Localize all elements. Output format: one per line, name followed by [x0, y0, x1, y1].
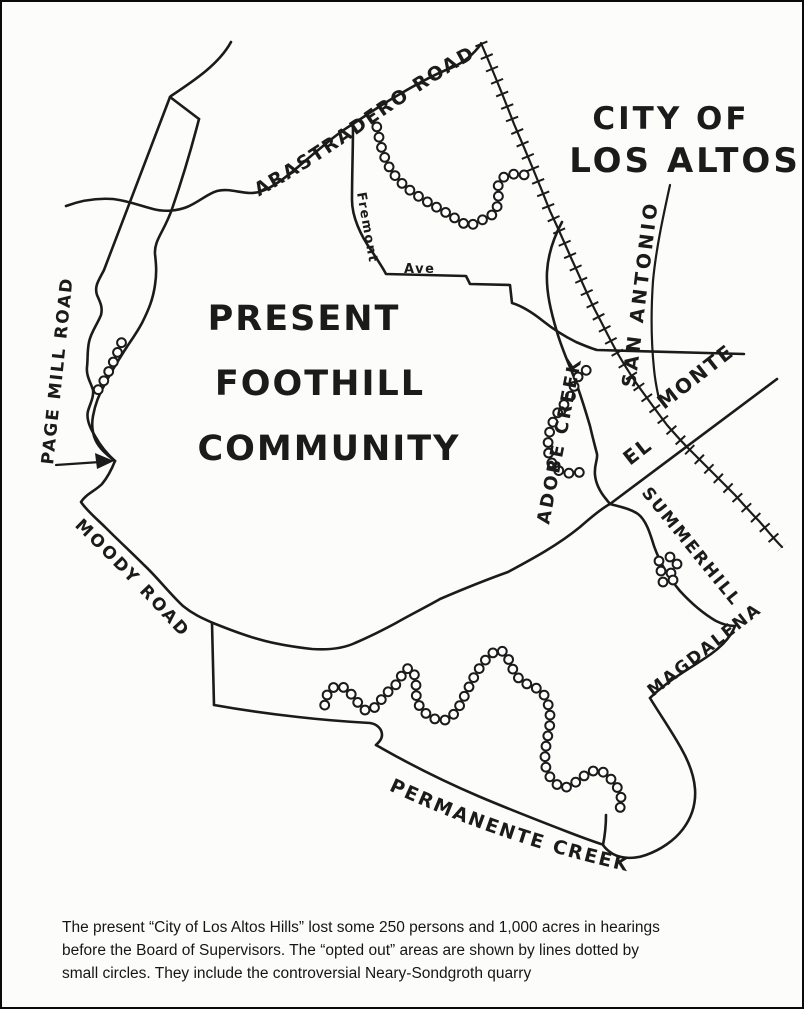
opted-out-bead	[504, 655, 513, 664]
opted-out-bead	[323, 691, 332, 700]
map-canvas: ARASTRADERO ROAD CITY OF LOS ALTOS PRESE…	[2, 2, 804, 1009]
southwest-drop-line	[212, 623, 214, 705]
page-mill-road-label: PAGE MILL ROAD	[38, 276, 78, 466]
opted-out-bead	[406, 186, 415, 195]
opted-out-bead	[493, 202, 502, 211]
opted-out-bead	[580, 772, 589, 781]
creek-connector-line	[603, 815, 606, 845]
opted-out-bead	[542, 763, 551, 772]
opted-out-bead	[542, 742, 551, 751]
opted-out-bead	[565, 469, 574, 478]
moody-road-label-text: MOODY ROAD	[71, 515, 194, 642]
southeast-boundary-line	[603, 698, 695, 858]
fremont-ave-label-suffix: Ave	[404, 262, 435, 277]
south-boundary-line	[214, 705, 382, 745]
arastradero-road-label: ARASTRADERO ROAD	[250, 42, 479, 201]
opted-out-bead	[391, 680, 400, 689]
el-monte-label-el: EL	[618, 432, 657, 470]
opted-out-bead	[540, 691, 549, 700]
el-monte-label-monte: MONTE	[652, 339, 738, 414]
opted-out-bead	[508, 665, 517, 674]
caption-line-3: small circles. They include the controve…	[62, 962, 762, 985]
opted-out-bead	[380, 153, 389, 162]
opted-out-bead	[370, 703, 379, 712]
opted-out-bead	[432, 203, 441, 212]
opted-out-bead	[575, 468, 584, 477]
opted-out-bead	[522, 680, 531, 689]
opted-out-bead	[494, 192, 503, 201]
opted-out-bead	[410, 670, 419, 679]
opted-out-bead	[543, 732, 552, 741]
caption-line-2: before the Board of Supervisors. The “op…	[62, 939, 762, 962]
moody-road-label: MOODY ROAD	[71, 515, 194, 642]
opted-out-bead	[422, 709, 431, 718]
map-labels: ARASTRADERO ROAD CITY OF LOS ALTOS PRESE…	[38, 42, 801, 877]
opted-out-bead	[398, 179, 407, 188]
opted-out-bead	[469, 673, 478, 682]
opted-out-bead	[478, 215, 487, 224]
opted-out-bead	[469, 220, 478, 229]
opted-out-bead	[353, 698, 362, 707]
opted-out-bead	[415, 701, 424, 710]
opted-out-bead	[441, 716, 450, 725]
opted-out-bead	[320, 701, 329, 710]
opted-out-bead	[487, 211, 496, 220]
opted-out-bead	[430, 715, 439, 724]
opted-out-bead	[459, 219, 468, 228]
city-of-los-altos-label-line2: LOS ALTOS	[569, 141, 801, 181]
opted-out-bead	[589, 767, 598, 776]
opted-out-bead	[104, 367, 113, 376]
opted-out-bead	[616, 803, 625, 812]
opted-out-bead	[599, 768, 608, 777]
opted-out-bead	[498, 647, 507, 656]
opted-out-bead	[509, 170, 518, 179]
opted-out-bead	[339, 683, 348, 692]
opted-out-bead	[117, 338, 126, 347]
opted-out-bead	[465, 683, 474, 692]
opted-out-bead	[347, 690, 356, 699]
opted-out-bead	[441, 208, 450, 217]
opted-out-bead	[391, 171, 400, 180]
opted-out-bead	[553, 780, 562, 789]
west-boundary-inner-line	[92, 119, 199, 461]
opted-out-bead	[423, 198, 432, 207]
opted-out-bead	[481, 656, 490, 665]
opted-out-bead	[460, 692, 469, 701]
opted-out-bead	[520, 171, 529, 180]
opted-out-bead	[475, 664, 484, 673]
opted-out-bead	[377, 695, 386, 704]
community-title-line3: COMMUNITY	[197, 429, 460, 469]
opted-out-bead	[499, 173, 508, 182]
adobe-creek-label: ADOBE CREEK	[533, 355, 586, 525]
map-caption: The present “City of Los Altos Hills” lo…	[62, 916, 762, 985]
opted-out-bead	[384, 687, 393, 696]
opted-out-bead	[546, 772, 555, 781]
opted-out-bead	[541, 752, 550, 761]
opted-out-bead	[607, 775, 616, 784]
opted-out-bead	[617, 793, 626, 802]
opted-out-bead	[412, 681, 421, 690]
opted-out-bead	[375, 133, 384, 142]
opted-out-bead	[571, 778, 580, 787]
opted-out-bead	[361, 706, 370, 715]
opted-out-bead	[109, 358, 118, 367]
opted-out-bead	[414, 192, 423, 201]
opted-out-bead	[329, 683, 338, 692]
permanente-creek-label-text: PERMANENTE CREEK	[386, 775, 632, 877]
opted-out-bead	[412, 691, 421, 700]
opted-out-bead	[450, 214, 459, 223]
opted-out-bead	[377, 143, 386, 152]
opted-out-bead	[455, 701, 464, 710]
san-antonio-label: SAN ANTONIO	[618, 199, 663, 389]
scanned-map-page: ARASTRADERO ROAD CITY OF LOS ALTOS PRESE…	[0, 0, 804, 1009]
page-mill-arrow-line	[56, 462, 100, 465]
community-title-line1: PRESENT	[208, 299, 401, 339]
west-boundary-outer-line	[87, 97, 170, 461]
strip-cap-line	[170, 97, 199, 119]
opted-out-bead	[99, 376, 108, 385]
opted-out-bead	[385, 163, 394, 172]
northwest-spur-line	[171, 42, 231, 96]
opted-out-bead	[113, 348, 122, 357]
opted-out-bead	[94, 385, 103, 394]
arastradero-road-label-text: ARASTRADERO ROAD	[250, 42, 479, 201]
opted-out-bead	[562, 783, 571, 792]
opted-out-bead	[449, 710, 458, 719]
opted-out-bead	[544, 700, 553, 709]
opted-out-bead	[613, 783, 622, 792]
opted-out-bead	[546, 711, 555, 720]
community-title-line2: FOOTHILL	[215, 364, 425, 404]
permanente-creek-label: PERMANENTE CREEK	[386, 775, 632, 877]
opted-out-bead	[494, 181, 503, 190]
page-mill-arrowhead	[95, 453, 114, 469]
opted-out-bead	[489, 649, 498, 658]
opted-out-bead	[545, 721, 554, 730]
opted-out-bead	[514, 674, 523, 683]
opted-out-bead	[532, 684, 541, 693]
city-of-los-altos-label-line1: CITY OF	[592, 101, 749, 137]
summerhill-quarry-cluster	[655, 553, 682, 587]
caption-line-1: The present “City of Los Altos Hills” lo…	[62, 916, 762, 939]
